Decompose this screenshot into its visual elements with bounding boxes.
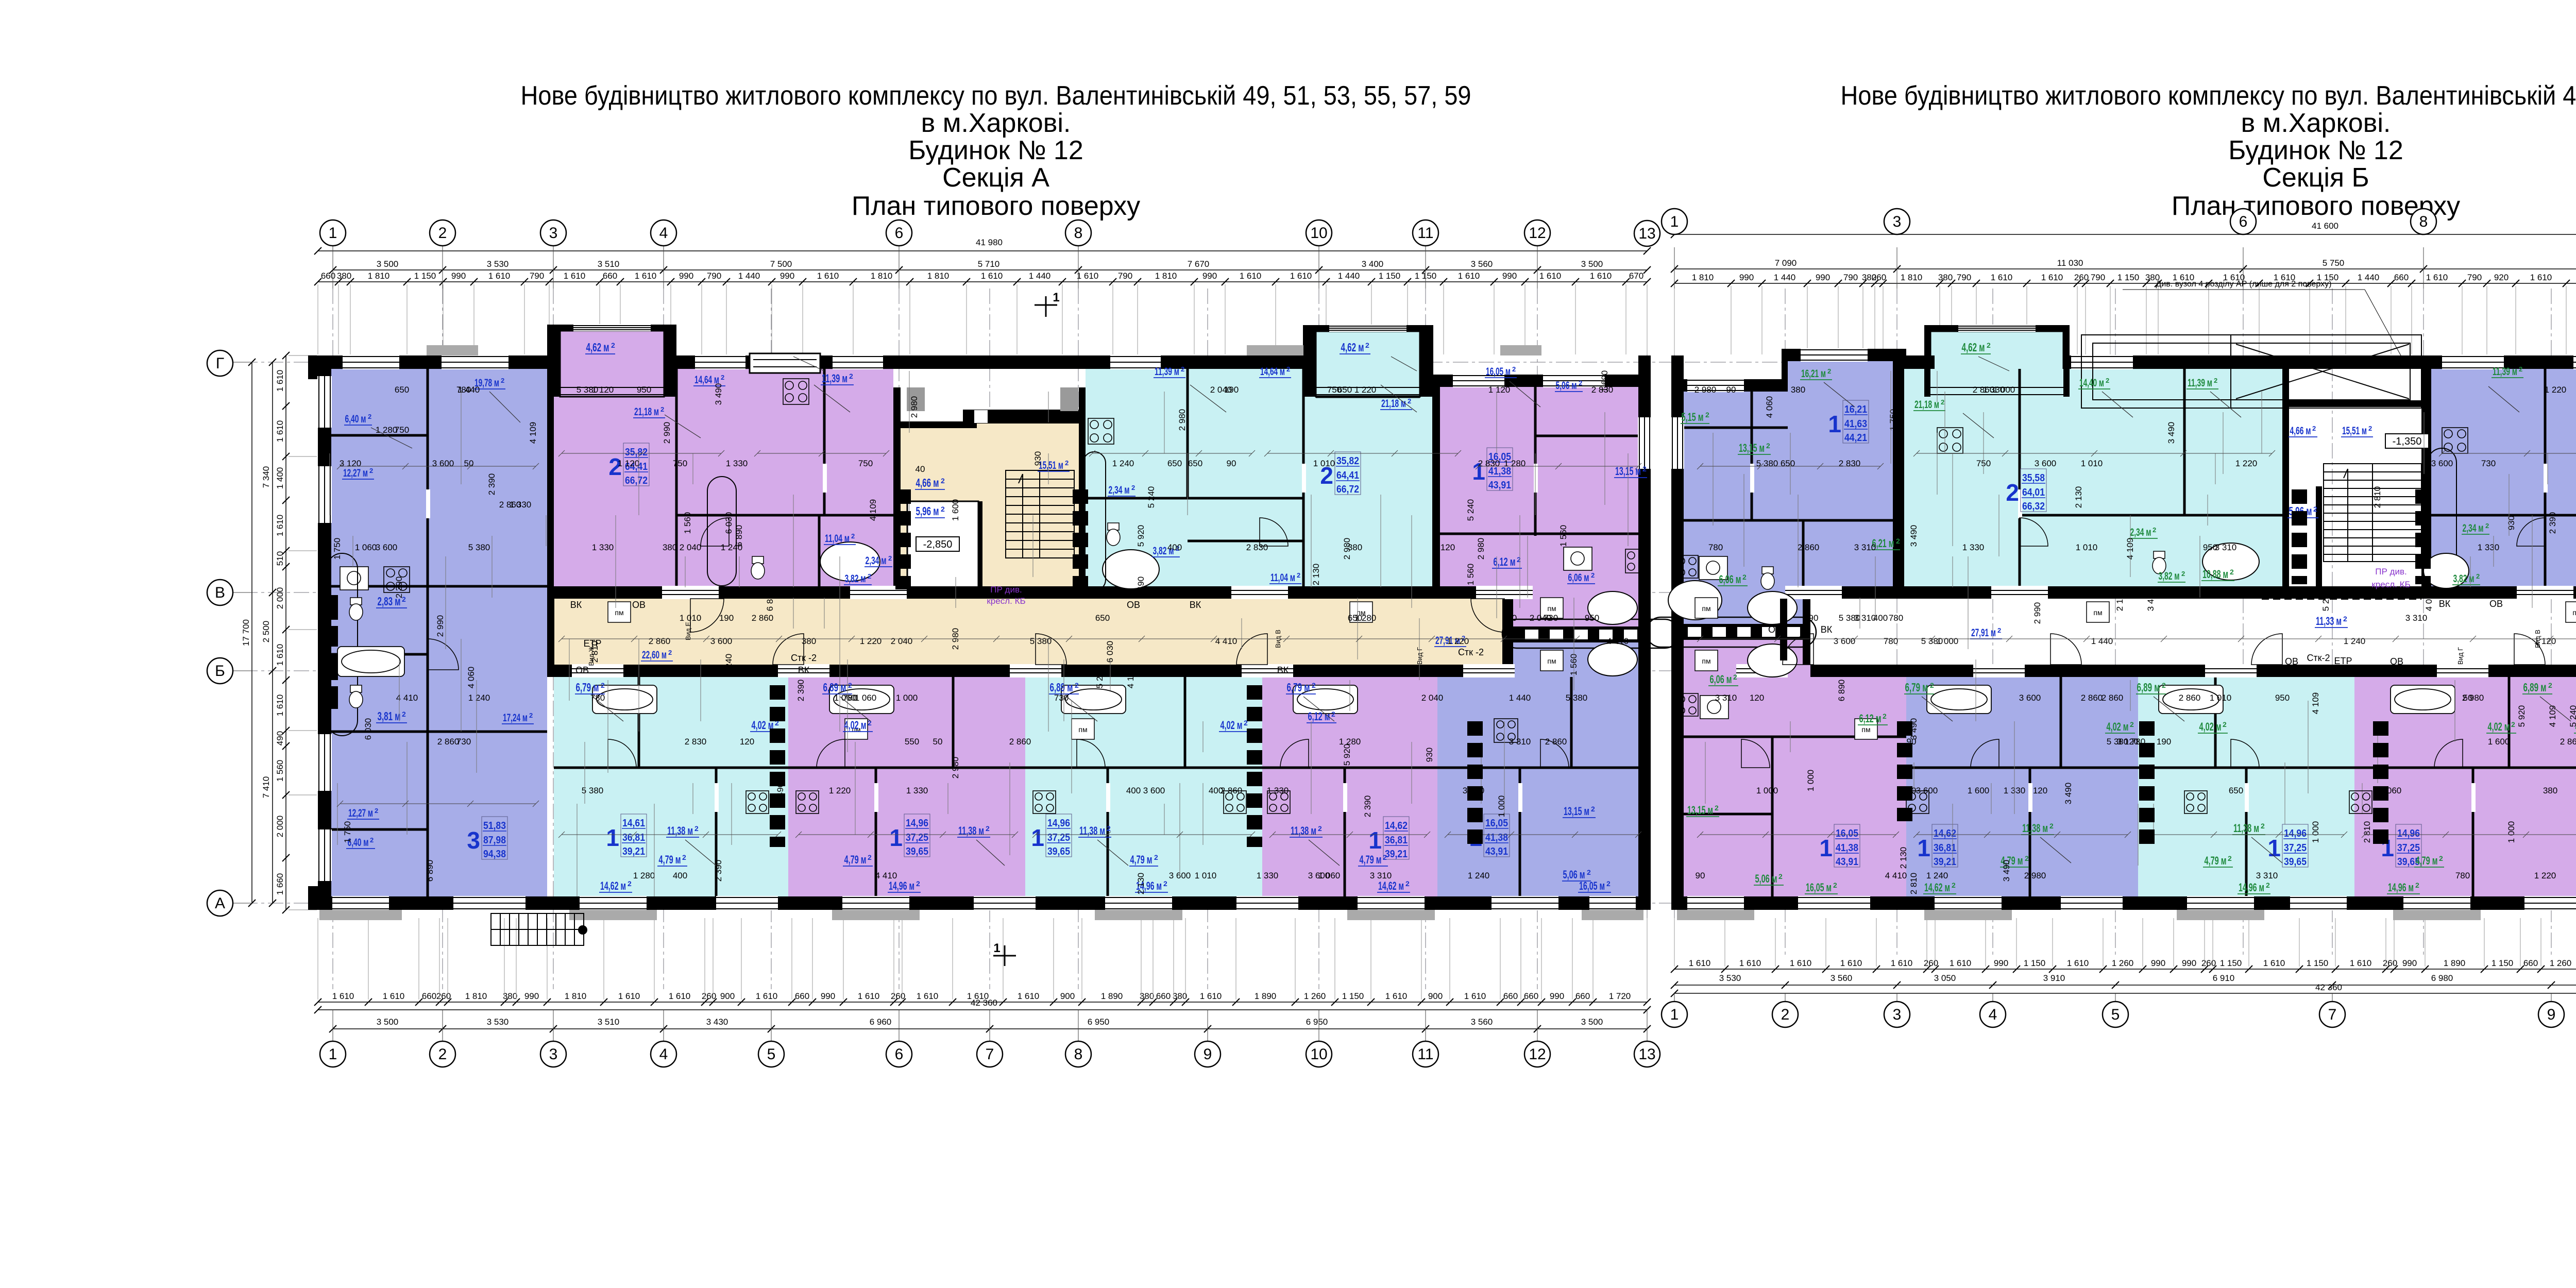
- svg-text:2: 2: [1591, 571, 1595, 579]
- svg-text:1 610: 1 610: [2350, 958, 2372, 968]
- svg-text:3 510: 3 510: [598, 1017, 620, 1027]
- svg-text:2: 2: [1715, 804, 1719, 812]
- svg-text:12,27 м: 12,27 м: [348, 807, 373, 819]
- svg-text:11,39 м: 11,39 м: [2188, 377, 2212, 389]
- svg-text:650: 650: [1337, 385, 1352, 395]
- svg-text:4 060: 4 060: [1765, 396, 1774, 418]
- svg-text:2: 2: [888, 554, 892, 562]
- svg-text:1 010: 1 010: [680, 613, 702, 623]
- svg-text:1 060: 1 060: [1318, 871, 1341, 880]
- svg-text:3 310: 3 310: [2256, 871, 2278, 880]
- svg-text:2 860: 2 860: [649, 636, 671, 646]
- svg-text:2: 2: [501, 377, 504, 384]
- svg-text:5 240: 5 240: [2321, 589, 2331, 612]
- svg-text:6,89 м: 6,89 м: [823, 681, 846, 694]
- svg-text:2 980: 2 980: [909, 396, 919, 418]
- svg-text:6 980: 6 980: [2431, 973, 2453, 983]
- svg-text:13,15 м: 13,15 м: [1564, 805, 1589, 818]
- svg-text:21,18 м: 21,18 м: [1914, 399, 1939, 411]
- svg-text:2: 2: [2006, 479, 2019, 506]
- svg-text:11 030: 11 030: [2057, 258, 2083, 268]
- svg-text:2: 2: [1318, 824, 1322, 833]
- svg-text:1 440: 1 440: [1029, 271, 1051, 281]
- svg-text:990: 990: [1550, 991, 1564, 1001]
- svg-text:2: 2: [1766, 442, 1770, 450]
- svg-text:2 830: 2 830: [1839, 459, 1861, 468]
- svg-text:11,39 м: 11,39 м: [1155, 366, 1179, 378]
- svg-text:3,82 м: 3,82 м: [845, 573, 866, 585]
- svg-text:1 440: 1 440: [2091, 636, 2113, 646]
- svg-text:1 280: 1 280: [1504, 459, 1526, 468]
- svg-text:2: 2: [986, 824, 990, 833]
- svg-text:пм: пм: [1547, 657, 1556, 665]
- svg-text:3 600: 3 600: [376, 543, 398, 552]
- svg-text:11: 11: [1417, 225, 1433, 242]
- svg-text:1 560: 1 560: [1466, 564, 1476, 586]
- svg-text:4,62 м: 4,62 м: [1341, 341, 1364, 354]
- svg-text:2: 2: [2266, 881, 2270, 889]
- svg-text:ОВ: ОВ: [1900, 665, 1913, 675]
- svg-text:2,34 м: 2,34 м: [2463, 522, 2484, 534]
- svg-text:1 810: 1 810: [1155, 271, 1177, 281]
- svg-text:5,06 м: 5,06 м: [1563, 868, 1585, 881]
- svg-text:900: 900: [1428, 991, 1443, 1001]
- svg-text:66,72: 66,72: [625, 475, 648, 486]
- svg-text:1 890: 1 890: [1255, 991, 1277, 1001]
- svg-text:2: 2: [941, 477, 945, 485]
- svg-text:660: 660: [1524, 991, 1538, 1001]
- svg-text:2: 2: [1512, 365, 1516, 373]
- svg-text:3: 3: [1893, 1006, 1902, 1023]
- svg-text:6 890: 6 890: [425, 860, 435, 882]
- svg-text:12: 12: [1529, 1046, 1546, 1063]
- svg-text:-2,850: -2,850: [923, 539, 953, 550]
- svg-text:1 150: 1 150: [2117, 273, 2140, 282]
- svg-text:в м.Харкові.: в м.Харкові.: [921, 108, 1071, 138]
- svg-text:990: 990: [1739, 273, 1754, 282]
- svg-text:2 980: 2 980: [951, 757, 960, 779]
- svg-text:В: В: [215, 584, 225, 601]
- svg-text:1 440: 1 440: [2358, 273, 2380, 282]
- svg-text:490: 490: [275, 731, 285, 745]
- svg-text:2: 2: [1591, 805, 1595, 813]
- svg-text:1 220: 1 220: [829, 786, 851, 795]
- svg-text:1: 1: [606, 824, 619, 851]
- svg-text:1 000: 1 000: [2311, 821, 2320, 843]
- svg-text:2 860: 2 860: [2560, 737, 2576, 747]
- svg-text:990: 990: [1202, 271, 1217, 281]
- svg-text:2: 2: [2214, 377, 2217, 384]
- svg-text:2: 2: [2313, 505, 2317, 513]
- svg-text:1 610: 1 610: [488, 271, 511, 281]
- svg-text:2: 2: [2130, 720, 2134, 728]
- svg-text:2: 2: [1833, 881, 1837, 889]
- svg-text:Стк-2: Стк-2: [2307, 653, 2330, 663]
- svg-text:50: 50: [464, 459, 474, 468]
- svg-text:пм: пм: [1702, 657, 1710, 665]
- svg-text:1 890: 1 890: [2444, 958, 2466, 968]
- svg-text:Г: Г: [216, 355, 224, 372]
- svg-text:Б: Б: [215, 663, 225, 680]
- svg-text:в м.Харкові.: в м.Харкові.: [2241, 108, 2391, 138]
- svg-text:3: 3: [467, 827, 480, 854]
- svg-text:1 610: 1 610: [1385, 991, 1408, 1001]
- svg-text:2,34 м: 2,34 м: [2130, 527, 2151, 538]
- svg-text:1 610: 1 610: [1689, 958, 1711, 968]
- svg-text:3 310: 3 310: [1509, 737, 1531, 747]
- svg-text:66,32: 66,32: [2022, 501, 2045, 512]
- svg-text:2: 2: [438, 1046, 447, 1063]
- svg-text:1 610: 1 610: [1200, 991, 1222, 1001]
- svg-text:План типового поверху: План типового поверху: [852, 191, 1140, 221]
- svg-text:Нове будівництво житлового ком: Нове будівництво житлового комплексу по …: [521, 81, 1471, 111]
- svg-text:2 040: 2 040: [891, 636, 913, 646]
- svg-text:1 610: 1 610: [275, 644, 285, 666]
- svg-text:550: 550: [905, 737, 919, 747]
- svg-text:41 600: 41 600: [2312, 221, 2338, 231]
- svg-text:380: 380: [337, 271, 351, 281]
- svg-text:2: 2: [2485, 522, 2489, 530]
- svg-text:790: 790: [2091, 273, 2105, 282]
- svg-text:1 610: 1 610: [669, 991, 691, 1001]
- svg-text:ЕТР: ЕТР: [2334, 656, 2352, 666]
- svg-text:15,51 м: 15,51 м: [2342, 425, 2367, 437]
- svg-text:1 810: 1 810: [1692, 273, 1714, 282]
- svg-text:2: 2: [1883, 712, 1887, 720]
- svg-text:4 410: 4 410: [1215, 636, 1238, 646]
- svg-text:2: 2: [529, 711, 533, 719]
- svg-text:2 810: 2 810: [1909, 873, 1919, 895]
- svg-text:14,96 м: 14,96 м: [2239, 881, 2264, 894]
- svg-text:2: 2: [402, 710, 406, 718]
- svg-text:2: 2: [2025, 854, 2029, 862]
- svg-text:380: 380: [802, 636, 816, 646]
- svg-text:17 700: 17 700: [241, 619, 251, 646]
- svg-text:6 950: 6 950: [1306, 1017, 1328, 1027]
- svg-text:2: 2: [868, 853, 872, 861]
- svg-text:1: 1: [1053, 291, 1059, 304]
- svg-text:2: 2: [1579, 379, 1582, 387]
- svg-text:1 810: 1 810: [465, 991, 487, 1001]
- svg-text:6 890: 6 890: [734, 525, 744, 547]
- svg-text:39,65: 39,65: [2284, 856, 2307, 868]
- svg-text:10: 10: [1310, 1046, 1327, 1063]
- svg-text:990: 990: [451, 271, 466, 281]
- svg-text:2: 2: [941, 505, 945, 513]
- svg-text:Стк -2: Стк -2: [1458, 647, 1484, 657]
- svg-text:5 380: 5 380: [1566, 693, 1588, 703]
- svg-text:11: 11: [1417, 1046, 1433, 1063]
- svg-text:780: 780: [1884, 636, 1898, 646]
- svg-text:2: 2: [1705, 411, 1709, 419]
- svg-text:380: 380: [1938, 273, 1953, 282]
- svg-text:380: 380: [1173, 991, 1187, 1001]
- svg-text:36,81: 36,81: [622, 832, 645, 843]
- svg-text:1 120: 1 120: [2534, 636, 2556, 646]
- svg-text:ПР див.: ПР див.: [990, 585, 1022, 595]
- svg-text:2: 2: [1408, 397, 1411, 405]
- svg-text:1 010: 1 010: [1195, 871, 1217, 880]
- svg-text:2: 2: [2476, 572, 2480, 580]
- svg-text:6,79 м: 6,79 м: [576, 681, 599, 694]
- svg-text:11,38 м: 11,38 м: [2233, 822, 2259, 835]
- svg-text:3 310: 3 310: [2405, 613, 2428, 623]
- svg-text:1 610: 1 610: [1464, 991, 1486, 1001]
- svg-text:3 600: 3 600: [2431, 459, 2453, 468]
- svg-text:2: 2: [1163, 879, 1167, 888]
- svg-text:1 220: 1 220: [2534, 871, 2556, 880]
- svg-text:260: 260: [891, 991, 905, 1001]
- svg-text:2 860: 2 860: [1545, 737, 1567, 747]
- svg-text:1: 1: [889, 824, 903, 851]
- svg-text:3 430: 3 430: [706, 1017, 728, 1027]
- svg-text:1 000: 1 000: [1937, 636, 1959, 646]
- svg-text:50: 50: [933, 737, 943, 747]
- svg-text:А: А: [215, 895, 225, 912]
- svg-text:1 240: 1 240: [468, 693, 490, 703]
- svg-text:3 310: 3 310: [1854, 543, 1876, 552]
- svg-text:120: 120: [2033, 786, 2047, 795]
- svg-text:2: 2: [848, 681, 852, 689]
- svg-text:35,82: 35,82: [625, 447, 648, 458]
- svg-text:1 610: 1 610: [275, 420, 285, 443]
- svg-text:930: 930: [2506, 516, 2516, 530]
- svg-text:1 150: 1 150: [2024, 958, 2046, 968]
- svg-text:2 990: 2 990: [662, 422, 672, 444]
- svg-text:3 560: 3 560: [1471, 259, 1493, 269]
- svg-text:2 830: 2 830: [685, 737, 707, 747]
- svg-text:5 920: 5 920: [1136, 525, 1146, 547]
- svg-text:990: 990: [1502, 271, 1517, 281]
- svg-text:1 610: 1 610: [275, 370, 285, 392]
- svg-text:750: 750: [858, 459, 873, 468]
- svg-text:790: 790: [707, 271, 721, 281]
- svg-text:1 750: 1 750: [343, 821, 352, 843]
- svg-text:6,89 м: 6,89 м: [1050, 681, 1073, 694]
- svg-text:41,38: 41,38: [1836, 842, 1858, 854]
- svg-text:22,60 м: 22,60 м: [642, 649, 667, 661]
- svg-text:260: 260: [1924, 958, 1938, 968]
- svg-text:5,06 м: 5,06 м: [1556, 380, 1577, 392]
- svg-text:120: 120: [740, 737, 754, 747]
- svg-text:2: 2: [370, 836, 374, 844]
- svg-text:1 330: 1 330: [592, 543, 614, 552]
- svg-text:990: 990: [780, 271, 794, 281]
- svg-text:37,25: 37,25: [906, 832, 928, 843]
- svg-text:11,39 м: 11,39 м: [822, 372, 848, 385]
- svg-text:1: 1: [1819, 835, 1833, 861]
- svg-text:2 830: 2 830: [1246, 543, 1268, 552]
- svg-text:1 610: 1 610: [1891, 958, 1913, 968]
- svg-text:13: 13: [1638, 225, 1655, 242]
- svg-text:1 610: 1 610: [1790, 958, 1812, 968]
- svg-text:44,21: 44,21: [1844, 432, 1867, 444]
- svg-text:3 530: 3 530: [1719, 973, 1741, 983]
- svg-text:1 240: 1 240: [1112, 459, 1134, 468]
- svg-text:4: 4: [659, 1046, 668, 1063]
- svg-text:13: 13: [1638, 1046, 1655, 1063]
- svg-text:2 000: 2 000: [275, 587, 285, 609]
- svg-text:2: 2: [668, 649, 672, 656]
- svg-text:2: 2: [660, 405, 664, 413]
- svg-text:ПР див.: ПР див.: [2375, 567, 2406, 577]
- svg-text:11,33 м: 11,33 м: [2316, 615, 2342, 628]
- svg-text:1 810: 1 810: [368, 271, 390, 281]
- svg-text:6 030: 6 030: [1105, 641, 1115, 663]
- svg-text:1 610: 1 610: [917, 991, 939, 1001]
- svg-text:1 000: 1 000: [1806, 770, 1816, 792]
- svg-text:4 410: 4 410: [1607, 636, 1629, 646]
- svg-text:2: 2: [868, 719, 872, 727]
- svg-text:1 240: 1 240: [1468, 871, 1490, 880]
- svg-text:4,02 м: 4,02 м: [2107, 720, 2129, 733]
- svg-text:14,62 м: 14,62 м: [1924, 881, 1950, 894]
- svg-text:260: 260: [702, 991, 716, 1001]
- svg-text:14,62: 14,62: [1385, 820, 1408, 832]
- svg-text:39,65: 39,65: [1047, 846, 1070, 857]
- svg-text:1: 1: [1670, 1006, 1679, 1023]
- svg-text:1: 1: [993, 941, 1000, 955]
- svg-text:400: 400: [1126, 786, 1141, 795]
- svg-text:790: 790: [1843, 273, 1858, 282]
- svg-text:1 440: 1 440: [1509, 693, 1531, 703]
- svg-text:Див. вузол 4 розділу АР (лише: Див. вузол 4 розділу АР (лише для 2 пове…: [2156, 280, 2332, 289]
- svg-text:1 610: 1 610: [1077, 271, 1099, 281]
- svg-text:1: 1: [329, 225, 337, 242]
- svg-text:1 260: 1 260: [1304, 991, 1326, 1001]
- svg-text:пм: пм: [1861, 725, 1870, 734]
- svg-text:5 240: 5 240: [1466, 499, 1476, 521]
- svg-text:1: 1: [1670, 213, 1679, 230]
- svg-text:1 720: 1 720: [1609, 991, 1631, 1001]
- svg-text:1 610: 1 610: [2263, 958, 2285, 968]
- svg-text:6: 6: [895, 225, 904, 242]
- svg-text:3 530: 3 530: [487, 1017, 509, 1027]
- svg-text:2: 2: [1642, 465, 1647, 473]
- svg-text:6,06 м: 6,06 м: [1568, 572, 1589, 584]
- svg-text:2: 2: [1181, 365, 1184, 373]
- svg-text:2 990: 2 990: [435, 615, 445, 637]
- svg-text:650: 650: [1781, 459, 1795, 468]
- svg-text:2: 2: [628, 879, 632, 888]
- svg-text:Будинок № 12: Будинок № 12: [2228, 135, 2403, 165]
- svg-text:1 330: 1 330: [1962, 543, 1985, 552]
- svg-text:2: 2: [1941, 398, 1944, 406]
- svg-text:2: 2: [682, 853, 686, 861]
- svg-text:1 610: 1 610: [2426, 273, 2448, 282]
- svg-text:5 240: 5 240: [2568, 705, 2576, 727]
- svg-text:2: 2: [2511, 720, 2515, 728]
- svg-text:4,79 м: 4,79 м: [2416, 854, 2438, 867]
- svg-text:2 390: 2 390: [2548, 512, 2557, 534]
- svg-text:1 750: 1 750: [1888, 409, 1898, 431]
- svg-text:пм: пм: [2572, 608, 2576, 617]
- svg-text:ВК: ВК: [2439, 599, 2451, 609]
- svg-text:1 610: 1 610: [1240, 271, 1262, 281]
- svg-text:3 510: 3 510: [598, 259, 620, 269]
- svg-text:4,79 м: 4,79 м: [1360, 853, 1382, 866]
- svg-text:16,05 м: 16,05 м: [1806, 881, 1832, 894]
- svg-text:1 610: 1 610: [2067, 958, 2089, 968]
- svg-text:14,62 м: 14,62 м: [600, 879, 626, 892]
- svg-text:780: 780: [2455, 871, 2470, 880]
- svg-text:16,21: 16,21: [1844, 404, 1867, 415]
- svg-text:5 380: 5 380: [1756, 459, 1778, 468]
- svg-text:990: 990: [2182, 958, 2196, 968]
- svg-text:6,06 м: 6,06 м: [1719, 573, 1741, 586]
- svg-text:8: 8: [1074, 1046, 1083, 1063]
- svg-text:2: 2: [1131, 484, 1135, 492]
- svg-text:2: 2: [1365, 341, 1369, 349]
- svg-text:990: 990: [821, 991, 835, 1001]
- svg-text:1 220: 1 220: [2545, 385, 2567, 395]
- svg-text:13,15 м: 13,15 м: [1739, 442, 1765, 454]
- svg-text:2 860: 2 860: [2179, 693, 2201, 703]
- svg-text:4 109: 4 109: [528, 422, 538, 444]
- svg-text:4 109: 4 109: [1126, 667, 1136, 689]
- svg-text:1 120: 1 120: [618, 459, 640, 468]
- svg-text:1 000: 1 000: [1756, 786, 1778, 795]
- svg-text:7 340: 7 340: [261, 466, 271, 488]
- svg-text:3 490: 3 490: [2002, 860, 2011, 882]
- svg-text:5: 5: [767, 1046, 776, 1063]
- svg-text:2: 2: [1606, 879, 1611, 888]
- svg-text:1 610: 1 610: [981, 271, 1003, 281]
- svg-text:6,89 м: 6,89 м: [2523, 681, 2547, 694]
- svg-text:2 390: 2 390: [487, 473, 497, 496]
- svg-text:790: 790: [530, 271, 544, 281]
- svg-text:2: 2: [2548, 681, 2552, 689]
- svg-text:1 150: 1 150: [1379, 271, 1401, 281]
- svg-text:42 360: 42 360: [2315, 982, 2342, 992]
- svg-text:1 810: 1 810: [927, 271, 950, 281]
- svg-text:790: 790: [2467, 273, 2482, 282]
- svg-text:1 150: 1 150: [414, 271, 436, 281]
- svg-text:43,91: 43,91: [1488, 480, 1511, 491]
- svg-text:2 390: 2 390: [394, 577, 404, 599]
- svg-text:260: 260: [436, 991, 451, 1001]
- svg-text:Вид Г: Вид Г: [2456, 647, 2464, 665]
- svg-text:1 060: 1 060: [855, 693, 877, 703]
- svg-text:780: 780: [1708, 543, 1723, 552]
- svg-text:660: 660: [603, 271, 617, 281]
- svg-text:2 980: 2 980: [1177, 409, 1187, 431]
- svg-text:1 610: 1 610: [2530, 273, 2552, 282]
- svg-text:14,96: 14,96: [1047, 818, 1070, 829]
- svg-text:190: 190: [719, 613, 734, 623]
- svg-text:кресл. КБ: кресл. КБ: [987, 596, 1025, 606]
- svg-text:6,79 м: 6,79 м: [1287, 681, 1310, 694]
- svg-text:27,91 м: 27,91 м: [1971, 627, 1996, 639]
- svg-text:16,21 м: 16,21 м: [1801, 368, 1826, 380]
- svg-text:1 810: 1 810: [1901, 273, 1923, 282]
- svg-text:120: 120: [1440, 543, 1455, 552]
- svg-text:Секція А: Секція А: [942, 163, 1049, 193]
- svg-text:10,88 м: 10,88 м: [2202, 568, 2228, 581]
- svg-text:1 120: 1 120: [592, 385, 614, 395]
- svg-text:1 610: 1 610: [1739, 958, 1761, 968]
- svg-text:1 600: 1 600: [2488, 737, 2510, 747]
- svg-text:1 610: 1 610: [275, 694, 285, 717]
- svg-text:2: 2: [1312, 681, 1316, 689]
- svg-text:42 360: 42 360: [971, 998, 997, 1008]
- svg-text:2: 2: [1107, 824, 1111, 833]
- svg-text:1 610: 1 610: [1950, 958, 1972, 968]
- svg-text:2: 2: [694, 824, 699, 833]
- svg-text:2,34 м: 2,34 м: [866, 555, 887, 567]
- svg-text:2 810: 2 810: [2372, 486, 2382, 509]
- svg-text:2: 2: [1331, 710, 1335, 718]
